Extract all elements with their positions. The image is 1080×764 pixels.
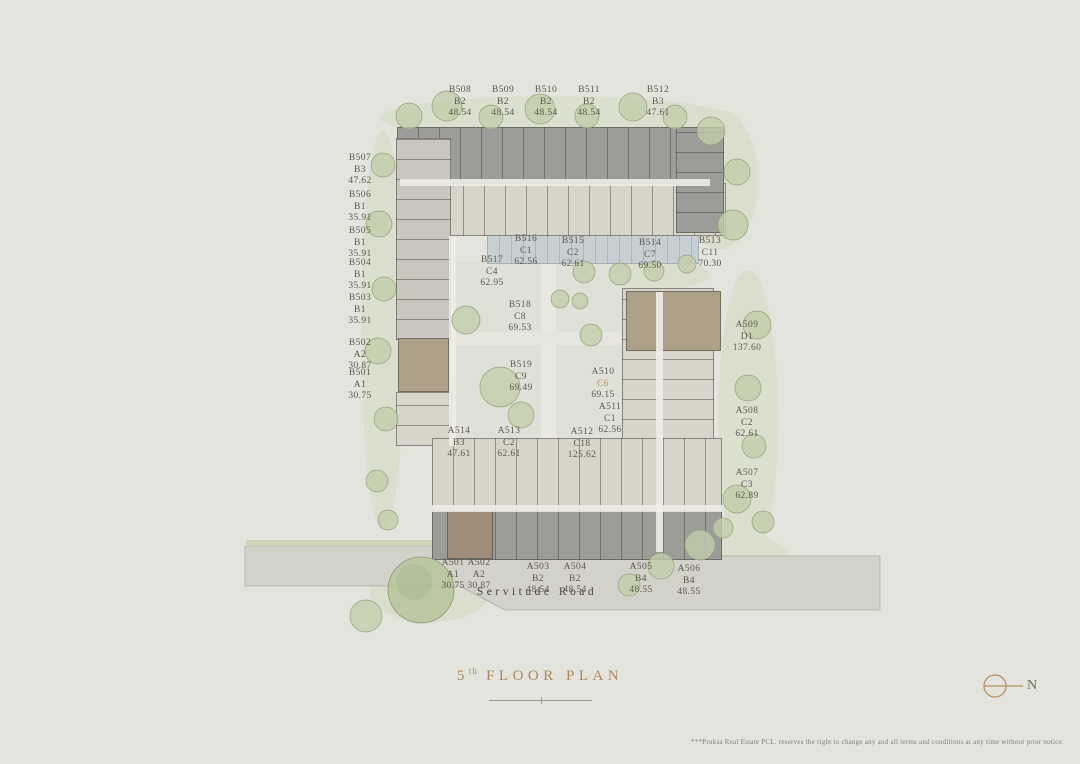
unit-id: A505 bbox=[629, 562, 652, 574]
unit-area: 48.54 bbox=[491, 108, 514, 120]
building-bottom-brown-unit bbox=[447, 511, 493, 559]
unit-area: 48.54 bbox=[577, 108, 600, 120]
unit-id: A503 bbox=[526, 562, 549, 574]
unit-type: B1 bbox=[348, 202, 371, 214]
unit-type: C2 bbox=[561, 248, 584, 260]
unit-area: 62.56 bbox=[514, 257, 537, 269]
disclaimer-text: ***Pruksa Real Estate PCL. reserves the … bbox=[691, 738, 1064, 746]
unit-id: A514 bbox=[447, 426, 470, 438]
unit-id: B506 bbox=[348, 190, 371, 202]
unit-area: 62.89 bbox=[735, 491, 758, 503]
unit-label-B517: B517C462.95 bbox=[480, 255, 503, 290]
title-divider-tick bbox=[541, 697, 542, 704]
unit-type: C4 bbox=[480, 267, 503, 279]
title-ordinal: th bbox=[469, 666, 478, 676]
unit-label-B512: B512B347.61 bbox=[646, 85, 669, 120]
unit-type: B2 bbox=[491, 97, 514, 109]
page-title: 5th FLOOR PLAN bbox=[457, 666, 623, 685]
unit-label-B506: B506B135.91 bbox=[348, 190, 371, 225]
unit-area: 48.54 bbox=[448, 108, 471, 120]
floor-plan-canvas: B508B248.54B509B248.54B510B248.54B511B24… bbox=[0, 0, 1080, 764]
north-label: N bbox=[1027, 678, 1038, 694]
unit-type: C2 bbox=[735, 418, 758, 430]
unit-type: C9 bbox=[509, 372, 532, 384]
unit-type: B1 bbox=[348, 270, 371, 282]
unit-id: B509 bbox=[491, 85, 514, 97]
unit-id: B508 bbox=[448, 85, 471, 97]
unit-id: A510 bbox=[591, 367, 614, 379]
unit-type: B4 bbox=[629, 574, 652, 586]
unit-id: B504 bbox=[348, 258, 371, 270]
unit-area: 47.61 bbox=[646, 108, 669, 120]
unit-id: B519 bbox=[509, 360, 532, 372]
unit-type: B1 bbox=[348, 238, 371, 250]
unit-id: A507 bbox=[735, 468, 758, 480]
unit-label-B508: B508B248.54 bbox=[448, 85, 471, 120]
unit-id: A502 bbox=[467, 558, 490, 570]
building-left-wing-brown bbox=[398, 338, 449, 392]
title-text: FLOOR PLAN bbox=[486, 668, 623, 684]
unit-label-B503: B503B135.91 bbox=[348, 293, 371, 328]
unit-label-A509: A509D1137.60 bbox=[733, 320, 762, 355]
unit-type: B1 bbox=[348, 305, 371, 317]
unit-area: 47.62 bbox=[348, 176, 371, 188]
unit-area: 125.62 bbox=[568, 450, 597, 462]
unit-area: 70.30 bbox=[698, 259, 721, 271]
unit-label-B514: B514C769.50 bbox=[638, 238, 661, 273]
unit-label-B515: B515C262.61 bbox=[561, 236, 584, 271]
unit-area: 48.55 bbox=[677, 587, 700, 599]
unit-type: A1 bbox=[441, 570, 464, 582]
unit-label-A507: A507C362.89 bbox=[735, 468, 758, 503]
unit-area: 35.91 bbox=[348, 281, 371, 293]
unit-label-B507: B507B347.62 bbox=[348, 153, 371, 188]
unit-label-A513: A513C262.61 bbox=[497, 426, 520, 461]
unit-area: 62.95 bbox=[480, 278, 503, 290]
unit-id: B501 bbox=[348, 368, 371, 380]
unit-type: B2 bbox=[448, 97, 471, 109]
unit-label-A511: A511C162.56 bbox=[598, 402, 621, 437]
unit-area: 35.91 bbox=[348, 316, 371, 328]
unit-area: 137.60 bbox=[733, 343, 762, 355]
unit-id: B512 bbox=[646, 85, 669, 97]
unit-area: 69.49 bbox=[509, 383, 532, 395]
unit-id: B510 bbox=[534, 85, 557, 97]
courtyard-path-horizontal bbox=[455, 332, 625, 345]
road-label: Servitude Road bbox=[477, 586, 597, 598]
unit-id: A512 bbox=[568, 427, 597, 439]
unit-id: B518 bbox=[508, 300, 531, 312]
unit-area: 30.75 bbox=[441, 581, 464, 593]
unit-area: 62.61 bbox=[561, 259, 584, 271]
unit-label-B501: B501A130.75 bbox=[348, 368, 371, 403]
unit-id: A504 bbox=[563, 562, 586, 574]
unit-type: B2 bbox=[526, 574, 549, 586]
unit-type: C6 bbox=[591, 379, 614, 391]
unit-type: C8 bbox=[508, 312, 531, 324]
unit-id: B507 bbox=[348, 153, 371, 165]
unit-type: B3 bbox=[646, 97, 669, 109]
unit-type: C2 bbox=[497, 438, 520, 450]
title-number: 5 bbox=[457, 668, 469, 684]
unit-label-A508: A508C262.61 bbox=[735, 406, 758, 441]
unit-id: A513 bbox=[497, 426, 520, 438]
north-compass-icon bbox=[975, 667, 1050, 707]
unit-area: 30.75 bbox=[348, 391, 371, 403]
title-divider bbox=[489, 700, 592, 701]
unit-id: B514 bbox=[638, 238, 661, 250]
unit-label-B513: B513C1170.30 bbox=[698, 236, 721, 271]
unit-label-A506: A506B448.55 bbox=[677, 564, 700, 599]
north-indicator: N bbox=[975, 667, 1050, 707]
unit-id: B502 bbox=[348, 338, 371, 350]
unit-type: B2 bbox=[534, 97, 557, 109]
unit-id: B517 bbox=[480, 255, 503, 267]
unit-type: B2 bbox=[563, 574, 586, 586]
unit-label-B511: B511B248.54 bbox=[577, 85, 600, 120]
unit-id: B511 bbox=[577, 85, 600, 97]
unit-label-B504: B504B135.91 bbox=[348, 258, 371, 293]
corridor-bottom bbox=[432, 505, 722, 512]
unit-type: B3 bbox=[447, 438, 470, 450]
unit-label-A514: A514B347.61 bbox=[447, 426, 470, 461]
unit-id: B505 bbox=[348, 226, 371, 238]
unit-type: C1 bbox=[514, 246, 537, 258]
building-left-wing-upper bbox=[396, 138, 451, 340]
road-hedge bbox=[246, 540, 460, 546]
unit-label-B518: B518C869.53 bbox=[508, 300, 531, 335]
unit-label-B505: B505B135.91 bbox=[348, 226, 371, 261]
unit-type: C7 bbox=[638, 250, 661, 262]
unit-type: D1 bbox=[733, 332, 762, 344]
unit-type: C1 bbox=[598, 414, 621, 426]
unit-label-B519: B519C969.49 bbox=[509, 360, 532, 395]
unit-area: 69.50 bbox=[638, 261, 661, 273]
unit-area: 69.15 bbox=[591, 390, 614, 402]
unit-id: A511 bbox=[598, 402, 621, 414]
unit-area: 62.61 bbox=[735, 429, 758, 441]
unit-area: 48.54 bbox=[534, 108, 557, 120]
unit-type: B3 bbox=[348, 165, 371, 177]
unit-area: 47.61 bbox=[447, 449, 470, 461]
unit-id: B516 bbox=[514, 234, 537, 246]
unit-id: B513 bbox=[698, 236, 721, 248]
courtyard-path-vertical bbox=[541, 262, 556, 440]
unit-label-A505: A505B448.55 bbox=[629, 562, 652, 597]
unit-label-B516: B516C162.56 bbox=[514, 234, 537, 269]
unit-type: C18 bbox=[568, 439, 597, 451]
building-right-wing-brown bbox=[626, 291, 721, 351]
unit-label-A501: A501A130.75 bbox=[441, 558, 464, 593]
corridor-left bbox=[449, 236, 456, 446]
unit-type: A2 bbox=[348, 350, 371, 362]
unit-id: B503 bbox=[348, 293, 371, 305]
unit-id: A506 bbox=[677, 564, 700, 576]
unit-type: C3 bbox=[735, 480, 758, 492]
corridor-top bbox=[400, 179, 710, 186]
unit-label-A512: A512C18125.62 bbox=[568, 427, 597, 462]
unit-area: 69.53 bbox=[508, 323, 531, 335]
unit-area: 62.61 bbox=[497, 449, 520, 461]
unit-type: A1 bbox=[348, 380, 371, 392]
unit-area: 48.55 bbox=[629, 585, 652, 597]
unit-area: 62.56 bbox=[598, 425, 621, 437]
unit-area: 35.91 bbox=[348, 213, 371, 225]
unit-id: B515 bbox=[561, 236, 584, 248]
unit-label-B510: B510B248.54 bbox=[534, 85, 557, 120]
unit-type: B2 bbox=[577, 97, 600, 109]
corridor-right bbox=[656, 292, 663, 552]
unit-id: A501 bbox=[441, 558, 464, 570]
unit-id: A508 bbox=[735, 406, 758, 418]
unit-type: B4 bbox=[677, 576, 700, 588]
unit-type: A2 bbox=[467, 570, 490, 582]
unit-label-A510: A510C669.15 bbox=[591, 367, 614, 402]
unit-type: C11 bbox=[698, 248, 721, 260]
unit-id: A509 bbox=[733, 320, 762, 332]
unit-label-B509: B509B248.54 bbox=[491, 85, 514, 120]
